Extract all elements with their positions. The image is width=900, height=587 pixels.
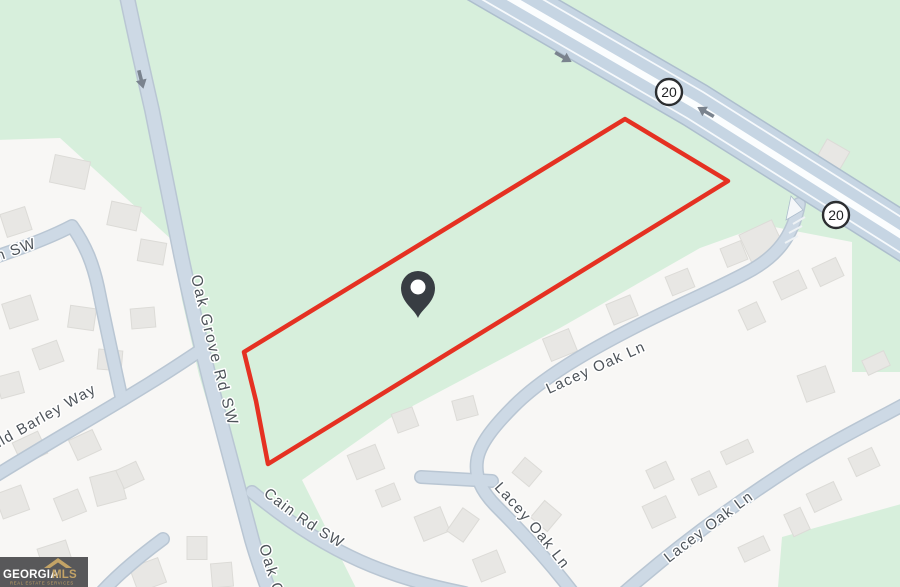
road-lacey-stub: [421, 477, 492, 481]
shield-number: 20: [828, 207, 844, 223]
highway-shield-20-upper: 20: [656, 79, 682, 105]
shield-number: 20: [661, 84, 677, 100]
georgia-mls-logo: GEORGIA MLS REAL ESTATE SERVICES: [0, 557, 88, 587]
house-footprint: [187, 537, 207, 560]
logo-text-mls: MLS: [52, 569, 77, 581]
house-footprint: [137, 239, 166, 265]
house-footprint: [210, 562, 233, 587]
house-footprint: [130, 307, 156, 329]
map-canvas[interactable]: Oak Grove Rd SW Oak Grove Rd SW Wild Bar…: [0, 0, 900, 587]
logo-text-georgia: GEORGIA: [3, 569, 59, 581]
logo-tagline: REAL ESTATE SERVICES: [10, 581, 74, 586]
highway-shield-20-lower: 20: [823, 202, 849, 228]
house-footprint: [68, 305, 97, 330]
pin-inner-dot: [411, 280, 426, 295]
